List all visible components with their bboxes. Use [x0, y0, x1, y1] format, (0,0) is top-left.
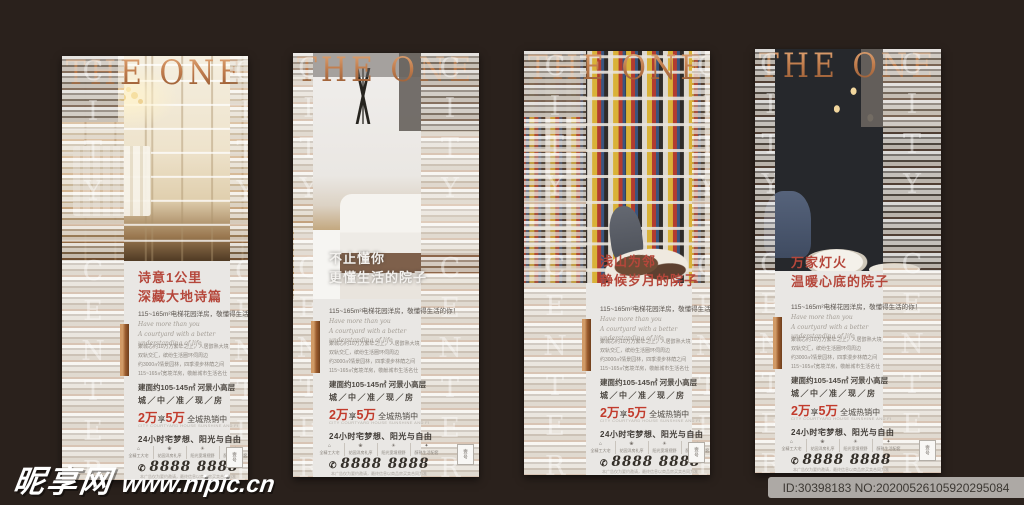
feature-row: ⌂ 全精工大宅 ❀ 花园洋房礼序 ☀ 阳光宽境视野 ✦ 醇熟生活配套	[317, 443, 441, 456]
poster-content: 万家灯火 温暖心底的院子 115~165m²电梯花园洋房，敬懂得生活的你！ Ha…	[791, 49, 891, 473]
sun-icon: ☀	[382, 443, 406, 449]
detail-copy: 聚城芯约10万方繁华之上，人居醇熟大境 双轨交汇，缤纷生活圈环伺周边 约3000…	[791, 336, 891, 372]
headline-line-1: 万家灯火	[791, 254, 891, 273]
detail-line: 双轨交汇，缤纷生活圈环伺周边	[600, 347, 700, 356]
detail-line: 双轨交汇，缤纷生活圈环伺周边	[791, 345, 891, 354]
detail-line: 115~165㎡宽境洋房，敬献城市生活名仕	[791, 363, 891, 372]
stamp-text: 壹号	[694, 447, 700, 458]
phone-number: 8888 8888	[341, 456, 430, 472]
phone-icon: ✆	[791, 457, 800, 467]
flower-icon: ❀	[811, 439, 835, 445]
phone-line: ✆8888 8888	[791, 452, 891, 468]
poster-card: THE ONE CITY CENTER CITY CENTER 诗意1公里 深藏…	[62, 56, 248, 480]
right-blur-strip: CITY CENTER	[883, 49, 941, 473]
detail-copy: 聚城芯约10万方繁华之上，人居醇熟大境 双轨交汇，缤纷生活圈环伺周边 约3000…	[138, 343, 238, 379]
poster-subline: 115~165m²电梯花园洋房，敬懂得生活的你！	[791, 301, 891, 311]
stamp-text: 壹号	[925, 445, 931, 456]
vertical-text-left: CITY CENTER	[293, 53, 313, 477]
vertical-text-right: CITY CENTER	[897, 49, 928, 473]
house-icon: ⌂	[320, 443, 340, 449]
developer-stamp: 壹号	[457, 444, 474, 465]
feature-item: ⌂ 全精工大宅	[778, 439, 806, 452]
english-line-1: Have more than you	[600, 315, 700, 325]
headline-line-2: 深藏大地诗篇	[138, 288, 238, 307]
promo-note: CITY COURTYARD HOUSE SUNSHINE AND FREEDO…	[600, 418, 700, 423]
promo-note: CITY COURTYARD HOUSE SUNSHINE AND FREEDO…	[791, 416, 891, 421]
watermark-site-name: 昵享网	[11, 456, 116, 501]
detail-line: 双轨交汇，缤纷生活圈环伺周边	[138, 352, 238, 361]
vertical-text-left: CITY CENTER	[540, 51, 571, 475]
feature-item: ⌂ 全精工大宅	[587, 441, 615, 454]
disclaimer: 本广告仅为要约邀请，最终信息以商品房买卖合同为准	[791, 467, 891, 473]
headline-line-1: 浅山为邻	[600, 253, 700, 272]
poster-content: 浅山为邻 静候岁月的院子 115~165m²电梯花园洋房，敬懂得生活的你！ Ha…	[600, 51, 700, 475]
detail-copy: 聚城芯约10万方繁华之上，人居醇熟大境 双轨交汇，缤纷生活圈环伺周边 约3000…	[600, 338, 700, 374]
sun-icon: ☀	[653, 441, 677, 447]
flower-icon: ❀	[620, 441, 644, 447]
vertical-text-right: CITY CENTER	[435, 53, 466, 477]
flower-icon: ❀	[349, 443, 373, 449]
right-blur-strip: CITY CENTER	[421, 53, 479, 477]
detail-line: 约3000㎡情景园林，四季漫步林荫之间	[791, 354, 891, 363]
poster-subline: 115~165m²电梯花园洋房，敬懂得生活的你！	[329, 305, 429, 315]
left-blur-strip: CITY CENTER	[524, 51, 586, 475]
phone-number: 8888 8888	[803, 452, 892, 468]
stamp-text: 壹号	[463, 449, 469, 460]
detail-line: 115~165㎡宽境洋房，敬献城市生活名仕	[600, 365, 700, 374]
area-line: 建面约105-145㎡ 河景小高层	[138, 382, 238, 393]
house-icon: ⌂	[129, 446, 149, 452]
left-blur-strip: CITY CENTER	[755, 49, 775, 473]
poster-headline: 诗意1公里 深藏大地诗篇	[138, 269, 238, 307]
detail-line: 聚城芯约10万方繁华之上，人居醇熟大境	[329, 340, 429, 349]
house-icon: ⌂	[591, 441, 611, 447]
disclaimer: 本广告仅为要约邀请，最终信息以商品房买卖合同为准	[600, 469, 700, 475]
feature-item: ✦ 醇熟生活配套	[872, 439, 905, 452]
promo-note: CITY COURTYARD HOUSE SUNSHINE AND FREEDO…	[138, 423, 238, 428]
image-id-bar: ID:30398183 NO:20200526105920295084	[768, 477, 1024, 498]
slogan: 24小时宅梦想、阳光与自由	[600, 429, 700, 440]
phone-line: ✆8888 8888	[600, 454, 700, 470]
flower-icon: ❀	[158, 446, 182, 452]
feature-item: ✦ 醇熟生活配套	[410, 443, 443, 456]
phone-icon: ✆	[600, 459, 609, 469]
left-blur-strip: CITY CENTER	[62, 56, 124, 480]
status-line: 城／中／准／现／房	[138, 395, 238, 406]
area-line: 建面约105-145㎡ 河景小高层	[791, 375, 891, 386]
area-line: 建面约105-145㎡ 河景小高层	[329, 379, 429, 390]
poster-headline: 不止懂你 更懂生活的院子	[329, 250, 429, 288]
slogan: 24小时宅梦想、阳光与自由	[791, 427, 891, 438]
copper-accent-bar	[120, 324, 129, 376]
phone-icon: ✆	[329, 461, 338, 471]
status-line: 城／中／准／现／房	[329, 392, 429, 403]
feature-item: ☀ 阳光宽境视野	[839, 439, 872, 452]
english-line-1: Have more than you	[138, 320, 238, 330]
headline-line-2: 温暖心底的院子	[791, 273, 891, 292]
detail-line: 约3000㎡情景园林，四季漫步林荫之间	[600, 356, 700, 365]
sparkle-icon: ✦	[877, 439, 901, 445]
watermark: 昵享网 www.nipic.cn	[14, 456, 274, 501]
house-icon: ⌂	[782, 439, 802, 445]
feature-item: ❀ 花园洋房礼序	[615, 441, 648, 454]
phone-line: ✆8888 8888	[329, 456, 429, 472]
vertical-text-left: CITY CENTER	[78, 56, 109, 480]
poster-subline: 115~165m²电梯花园洋房，敬懂得生活的你！	[600, 303, 700, 313]
poster-content: 不止懂你 更懂生活的院子 115~165m²电梯花园洋房，敬懂得生活的你！ Ha…	[329, 53, 429, 477]
feature-item: ☀ 阳光宽境视野	[648, 441, 681, 454]
detail-line: 双轨交汇，缤纷生活圈环伺周边	[329, 349, 429, 358]
english-line-1: Have more than you	[791, 313, 891, 323]
status-line: 城／中／准／现／房	[600, 390, 700, 401]
headline-line-2: 静候岁月的院子	[600, 272, 700, 291]
headline-line-1: 诗意1公里	[138, 269, 238, 288]
area-line: 建面约105-145㎡ 河景小高层	[600, 377, 700, 388]
slogan: 24小时宅梦想、阳光与自由	[138, 434, 238, 445]
watermark-url: www.nipic.cn	[120, 471, 276, 499]
vertical-text-left: CITY CENTER	[755, 49, 775, 473]
poster-card: THE ONE CITY CENTER CITY CENTER 不止懂你 更懂生…	[293, 53, 479, 477]
detail-line: 115~165㎡宽境洋房，敬献城市生活名仕	[329, 367, 429, 376]
feature-item: ⌂ 全精工大宅	[316, 443, 344, 456]
left-blur-strip: CITY CENTER	[293, 53, 313, 477]
poster-headline: 浅山为邻 静候岁月的院子	[600, 253, 700, 291]
detail-line: 聚城芯约10万方繁华之上，人居醇熟大境	[600, 338, 700, 347]
poster-card: THE ONE CITY CENTER CITY CENTER 浅山为邻 静候岁…	[524, 51, 710, 475]
developer-stamp: 壹号	[919, 440, 936, 461]
detail-copy: 聚城芯约10万方繁华之上，人居醇熟大境 双轨交汇，缤纷生活圈环伺周边 约3000…	[329, 340, 429, 376]
image-id-text: ID:30398183 NO:20200526105920295084	[783, 481, 1010, 495]
feature-row: ⌂ 全精工大宅 ❀ 花园洋房礼序 ☀ 阳光宽境视野 ✦ 醇熟生活配套	[779, 439, 903, 452]
status-line: 城／中／准／现／房	[791, 388, 891, 399]
feature-item: ❀ 花园洋房礼序	[344, 443, 377, 456]
detail-line: 约3000㎡情景园林，四季漫步林荫之间	[329, 358, 429, 367]
slogan: 24小时宅梦想、阳光与自由	[329, 431, 429, 442]
promo-note: CITY COURTYARD HOUSE SUNSHINE AND FREEDO…	[329, 420, 429, 425]
developer-stamp: 壹号	[688, 442, 705, 463]
poster-headline: 万家灯火 温暖心底的院子	[791, 254, 891, 292]
feature-item: ❀ 花园洋房礼序	[806, 439, 839, 452]
copper-accent-bar	[773, 317, 782, 369]
detail-line: 聚城芯约10万方繁华之上，人居醇熟大境	[791, 336, 891, 345]
headline-line-2: 更懂生活的院子	[329, 269, 429, 288]
copper-accent-bar	[311, 321, 320, 373]
copper-accent-bar	[582, 319, 591, 371]
poster-board: THE ONE CITY CENTER CITY CENTER 诗意1公里 深藏…	[0, 0, 1024, 505]
sun-icon: ☀	[844, 439, 868, 445]
sun-icon: ☀	[191, 446, 215, 452]
detail-line: 115~165㎡宽境洋房，敬献城市生活名仕	[138, 370, 238, 379]
detail-line: 聚城芯约10万方繁华之上，人居醇熟大境	[138, 343, 238, 352]
detail-line: 约3000㎡情景园林，四季漫步林荫之间	[138, 361, 238, 370]
headline-line-1: 不止懂你	[329, 250, 429, 269]
poster-subline: 115~165m²电梯花园洋房，敬懂得生活的你！	[138, 308, 238, 318]
poster-content: 诗意1公里 深藏大地诗篇 115~165m²电梯花园洋房，敬懂得生活的你！ Ha…	[138, 56, 238, 480]
sparkle-icon: ✦	[415, 443, 439, 449]
disclaimer: 本广告仅为要约邀请，最终信息以商品房买卖合同为准	[329, 471, 429, 477]
poster-card: THE ONE CITY CENTER CITY CENTER 万家灯火 温暖心…	[755, 49, 941, 473]
feature-item: ☀ 阳光宽境视野	[377, 443, 410, 456]
english-line-1: Have more than you	[329, 317, 429, 327]
